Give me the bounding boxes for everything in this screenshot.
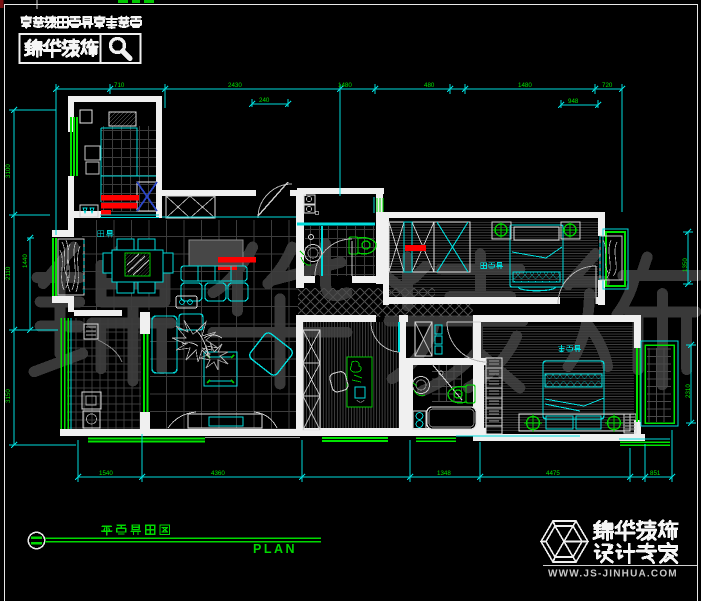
svg-text:2110: 2110 — [5, 266, 12, 280]
svg-text:1480: 1480 — [518, 82, 532, 89]
svg-text:1540: 1540 — [99, 470, 113, 477]
svg-text:240: 240 — [259, 97, 270, 104]
svg-text:1480: 1480 — [338, 82, 352, 89]
svg-text:4360: 4360 — [211, 470, 225, 477]
svg-text:4475: 4475 — [546, 470, 560, 477]
svg-text:2430: 2430 — [228, 82, 242, 89]
svg-text:1350: 1350 — [682, 258, 689, 272]
svg-text:PLAN: PLAN — [253, 542, 297, 556]
svg-text:3100: 3100 — [5, 164, 12, 178]
svg-text:710: 710 — [114, 82, 125, 89]
svg-text:851: 851 — [650, 470, 661, 477]
svg-text:480: 480 — [424, 82, 435, 89]
svg-text:3150: 3150 — [5, 389, 12, 403]
svg-text:WWW.JS-JINHUA.COM: WWW.JS-JINHUA.COM — [548, 569, 678, 580]
svg-text:1348: 1348 — [437, 470, 451, 477]
svg-text:948: 948 — [568, 98, 579, 105]
svg-text:720: 720 — [602, 82, 613, 89]
svg-text:1440: 1440 — [22, 254, 29, 268]
svg-text:2310: 2310 — [685, 384, 692, 398]
